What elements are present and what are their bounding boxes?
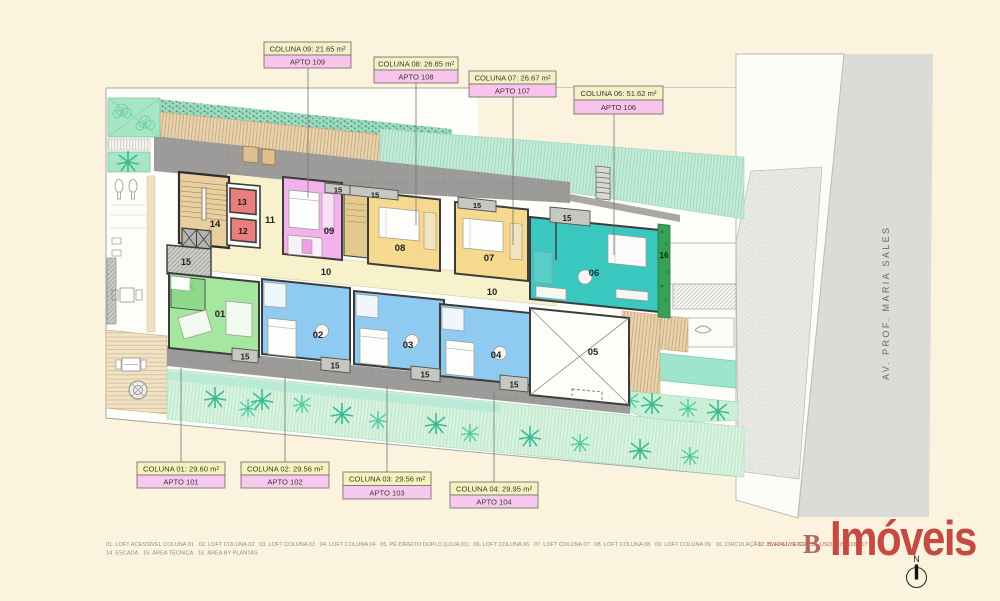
svg-text:14. ESCADA 15. ÁREA TÉCNICA: 14. ESCADA 15. ÁREA TÉCNICA 16. ÁREA BY … xyxy=(106,550,258,557)
svg-text:APTO 107: APTO 107 xyxy=(495,87,530,96)
svg-text:16: 16 xyxy=(660,251,669,260)
svg-text:15: 15 xyxy=(371,191,379,200)
svg-text:COLUNA 09: 21.65 m²: COLUNA 09: 21.65 m² xyxy=(270,45,346,54)
svg-text:15: 15 xyxy=(473,201,481,210)
svg-text:B: B xyxy=(803,529,821,559)
svg-text:14: 14 xyxy=(210,219,221,230)
svg-text:APTO 102: APTO 102 xyxy=(267,478,302,487)
svg-text:12: 12 xyxy=(238,226,248,236)
svg-text:15: 15 xyxy=(421,371,430,380)
svg-text:COLUNA 04: 29.95 m²: COLUNA 04: 29.95 m² xyxy=(456,485,532,494)
svg-text:15: 15 xyxy=(331,362,340,371)
svg-text:01. LOFT ACESSÍVEL COLUNA 01: 01. LOFT ACESSÍVEL COLUNA 01 02. LOFT CO… xyxy=(106,541,811,548)
svg-text:05: 05 xyxy=(588,347,599,358)
svg-text:COLUNA 08: 26.85 m²: COLUNA 08: 26.85 m² xyxy=(378,60,454,69)
svg-text:10: 10 xyxy=(487,287,498,298)
svg-text:APTO 104: APTO 104 xyxy=(476,498,511,507)
svg-text:COLUNA 02: 29.56 m²: COLUNA 02: 29.56 m² xyxy=(247,465,323,474)
svg-text:COLUNA 06: 51.62 m²: COLUNA 06: 51.62 m² xyxy=(581,89,657,98)
svg-text:06: 06 xyxy=(589,268,600,279)
svg-text:Imóveis: Imóveis xyxy=(830,510,976,566)
svg-text:15: 15 xyxy=(334,186,342,195)
svg-text:APTO 101: APTO 101 xyxy=(163,478,198,487)
svg-text:15: 15 xyxy=(510,381,519,390)
svg-text:APTO 108: APTO 108 xyxy=(398,73,433,82)
svg-text:APTO 106: APTO 106 xyxy=(601,103,636,112)
svg-text:02: 02 xyxy=(313,330,324,341)
svg-text:AV. PROF. MARIA SALES: AV. PROF. MARIA SALES xyxy=(881,226,891,380)
svg-text:APTO 103: APTO 103 xyxy=(369,489,404,498)
svg-text:15: 15 xyxy=(241,353,250,362)
svg-text:09: 09 xyxy=(324,226,335,237)
svg-text:07: 07 xyxy=(484,253,495,264)
svg-text:APTO 109: APTO 109 xyxy=(290,58,325,67)
svg-text:15: 15 xyxy=(181,257,191,267)
svg-text:08: 08 xyxy=(395,243,406,254)
svg-text:11: 11 xyxy=(265,215,276,226)
svg-text:03: 03 xyxy=(403,340,414,351)
svg-text:COLUNA 07: 26.67 m²: COLUNA 07: 26.67 m² xyxy=(475,74,551,83)
svg-text:15: 15 xyxy=(563,214,572,223)
svg-text:13: 13 xyxy=(237,197,247,207)
svg-text:10: 10 xyxy=(321,267,332,278)
svg-text:COLUNA 03: 29.56 m²: COLUNA 03: 29.56 m² xyxy=(349,475,425,484)
svg-text:01: 01 xyxy=(215,309,226,320)
svg-text:N: N xyxy=(913,554,920,564)
svg-text:04: 04 xyxy=(491,350,502,361)
svg-text:COLUNA 01: 29.60 m²: COLUNA 01: 29.60 m² xyxy=(143,465,219,474)
